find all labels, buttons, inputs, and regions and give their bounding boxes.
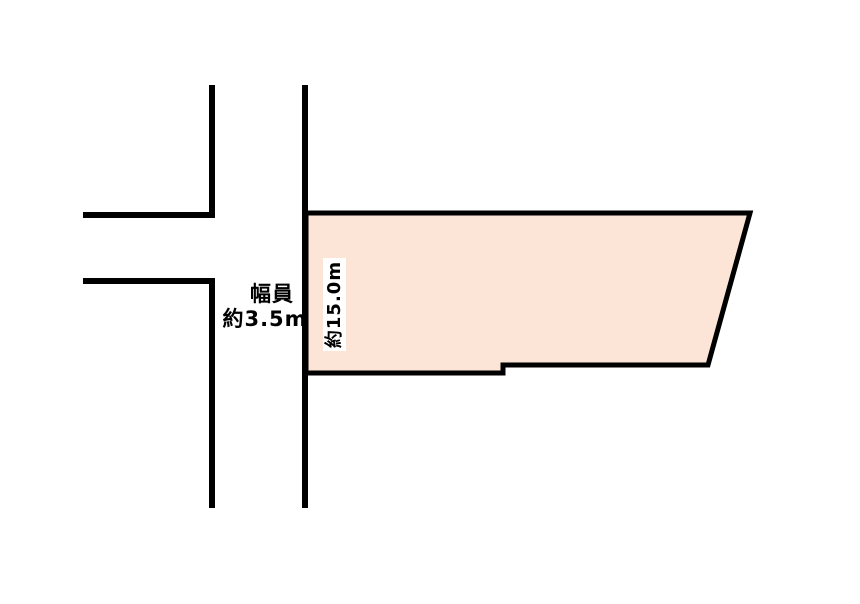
land-parcel-shape: [306, 213, 750, 373]
site-plan-canvas: 幅員 約3.5m 約15.0m: [0, 0, 860, 604]
parcel-frontage-label: 約15.0m: [323, 261, 345, 348]
road-width-label-line2: 約3.5m: [222, 307, 307, 331]
road-width-label-line1: 幅員: [250, 282, 294, 306]
site-plan-diagram: 幅員 約3.5m 約15.0m: [0, 0, 860, 604]
road-edge-upper-left: [83, 85, 212, 215]
road-edge-lower-left: [83, 281, 212, 508]
